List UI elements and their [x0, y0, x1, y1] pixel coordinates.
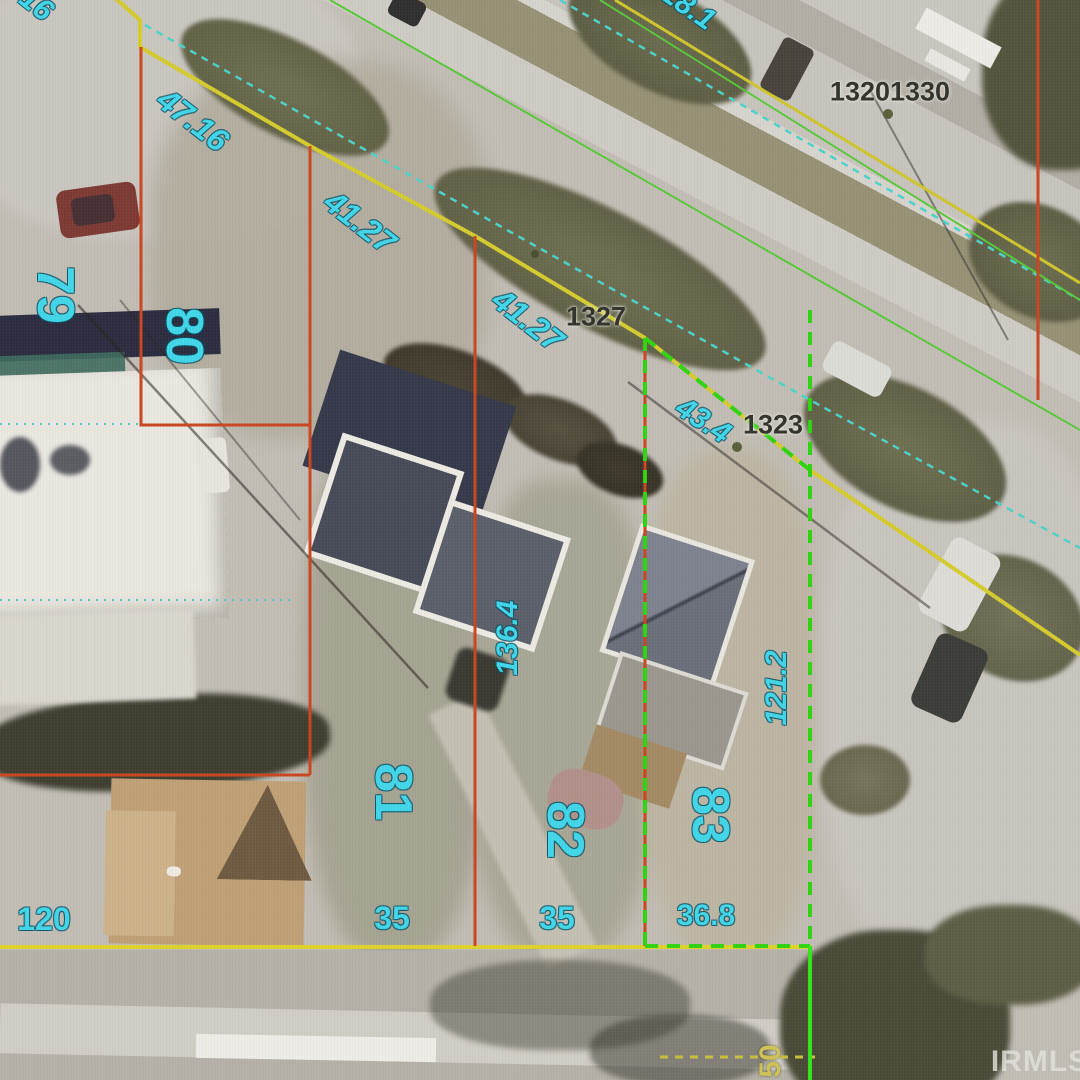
address-point-dot — [531, 250, 539, 258]
dimension-label-1364: 136.4 — [493, 600, 523, 675]
parcel-label-80: 80 — [158, 307, 210, 365]
dimension-label-35-a: 35 — [374, 902, 410, 934]
cyan-survey-line — [560, 0, 1080, 300]
dimension-fragment-50: 50 — [756, 1044, 786, 1077]
powerline-shadow — [78, 305, 428, 688]
dimension-label-368: 36.8 — [677, 901, 735, 931]
parcel-label-81: 81 — [367, 763, 419, 821]
powerline-shadow — [870, 90, 1008, 340]
address-point-dot — [732, 442, 742, 452]
address-label-1327: 1327 — [566, 304, 626, 331]
address-label-1323: 1323 — [743, 412, 803, 439]
parcel-label-82: 82 — [539, 801, 591, 859]
yellow-road-line-upper — [615, 0, 1080, 283]
address-label-13201330: 13201330 — [830, 79, 950, 106]
address-point-dot — [883, 109, 893, 119]
aerial-parcel-map[interactable]: 79 80 81 82 83 47.16 41.27 41.27 43.4 13… — [0, 0, 1080, 1080]
parcel-label-83: 83 — [684, 786, 736, 844]
parcel-label-79: 79 — [29, 266, 81, 324]
dimension-label-120: 120 — [17, 903, 70, 935]
irmls-watermark: IRMLS — [991, 1047, 1080, 1077]
dimension-label-1212: 121.2 — [762, 650, 792, 725]
green-road-line — [600, 0, 1080, 300]
dimension-label-35-b: 35 — [539, 902, 575, 934]
